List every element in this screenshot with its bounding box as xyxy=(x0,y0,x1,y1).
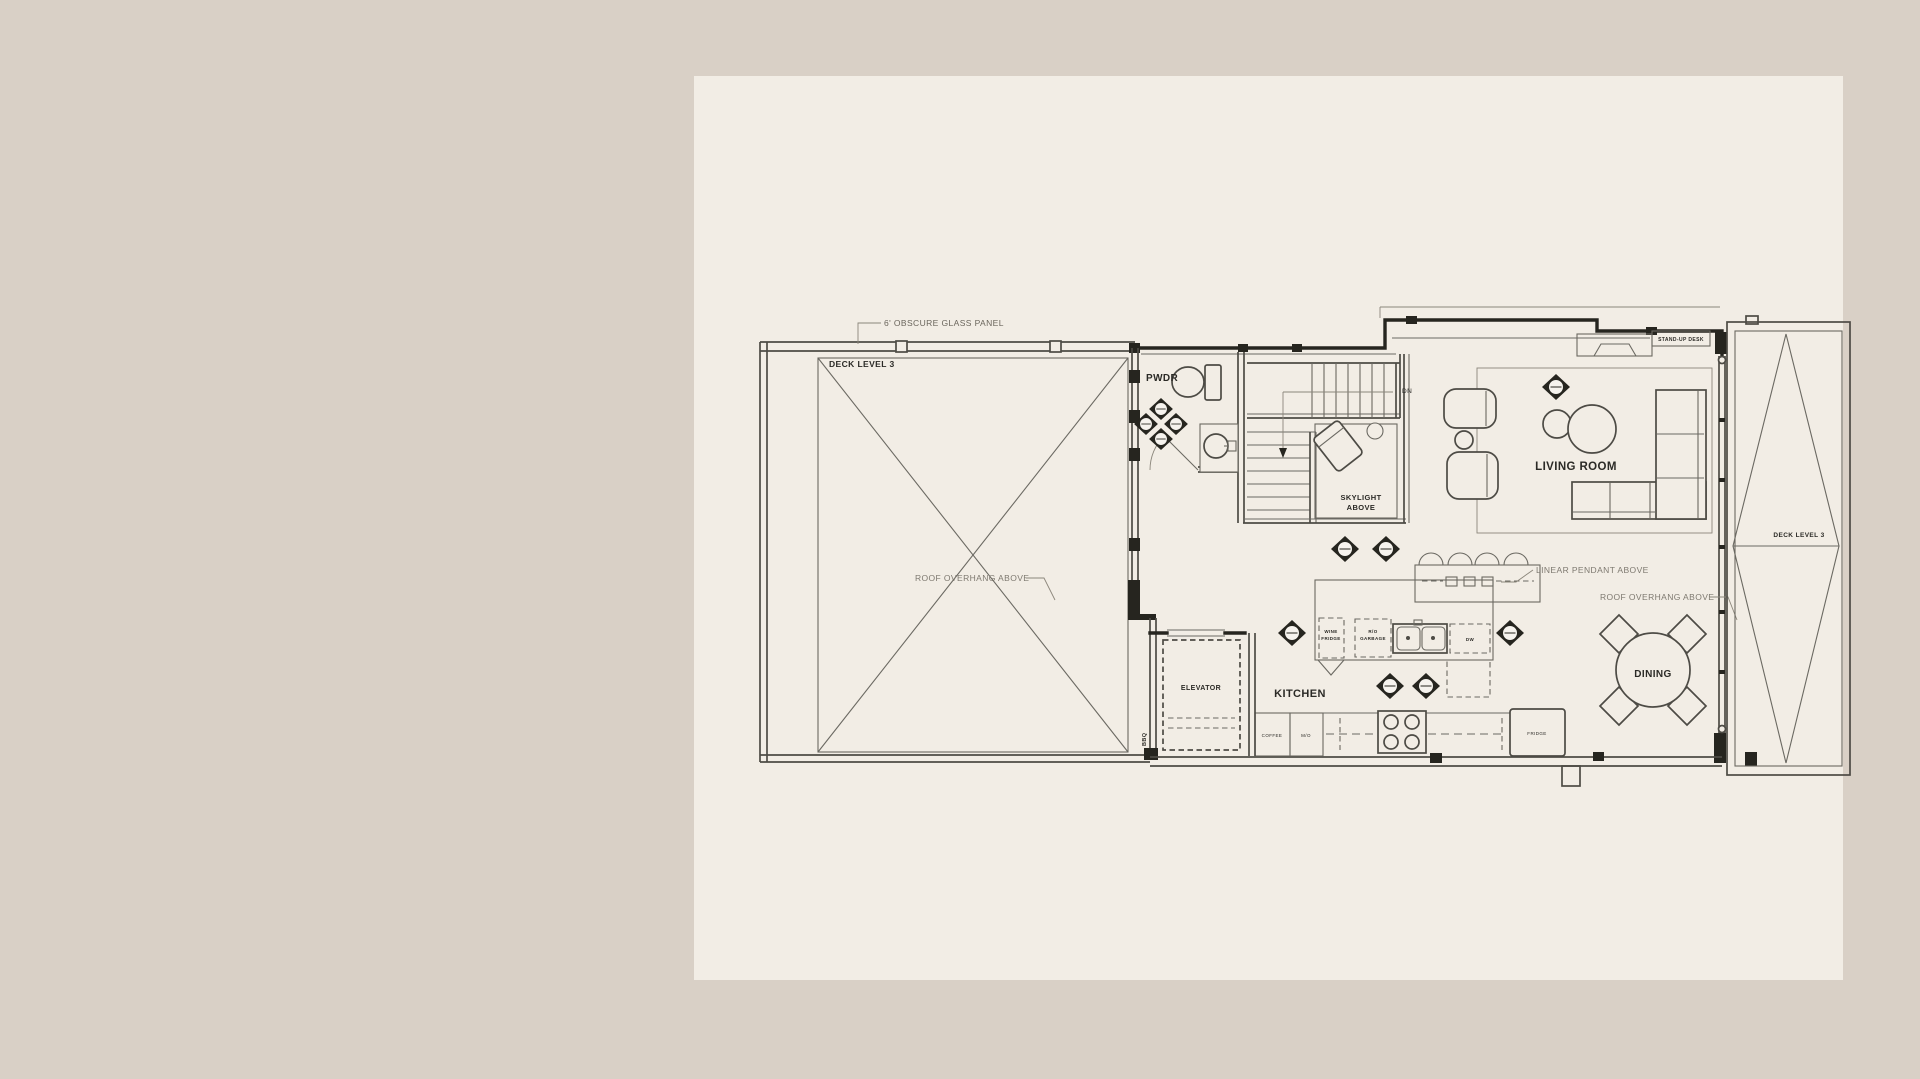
side-table xyxy=(1455,431,1473,449)
glass-panel-tick xyxy=(896,341,907,352)
roof-overhang-left-label: ROOF OVERHANG ABOVE xyxy=(915,573,1029,583)
wine-fridge-label-2: FRIDGE xyxy=(1321,636,1340,641)
glass-panel-tick xyxy=(1050,341,1061,352)
toilet xyxy=(1172,365,1221,400)
glass-panel-label: 6' OBSCURE GLASS PANEL xyxy=(884,318,1004,328)
mo-label: M/O xyxy=(1301,733,1311,738)
coffee-table xyxy=(1568,405,1616,453)
coffee-table xyxy=(1543,410,1571,438)
floor-plan-drawing: DECK LEVEL 3 6' OBSCURE GLASS PANEL ROOF… xyxy=(0,0,1920,1079)
roof-overhang-right-label: ROOF OVERHANG ABOVE xyxy=(1600,592,1714,602)
dining-label: DINING xyxy=(1634,669,1671,680)
ro-garbage-label-1: R/O xyxy=(1368,629,1377,634)
fridge-label: FRIDGE xyxy=(1527,731,1546,736)
deck-left-label: DECK LEVEL 3 xyxy=(829,359,895,369)
door-pull xyxy=(1719,726,1726,733)
armchair xyxy=(1444,389,1496,428)
ro-garbage-label-2: GARBAGE xyxy=(1360,636,1386,641)
pwdr-label: PWDR xyxy=(1146,373,1179,384)
coffee-label: COFFEE xyxy=(1262,733,1283,738)
fridge: FRIDGE xyxy=(1510,709,1565,756)
stove xyxy=(1378,711,1426,753)
door-pull xyxy=(1719,357,1726,364)
linear-pendant-label: LINEAR PENDANT ABOVE xyxy=(1536,565,1649,575)
skylight-label-2: ABOVE xyxy=(1347,503,1376,512)
elevator-label: ELEVATOR xyxy=(1181,685,1221,692)
side-table xyxy=(1367,423,1383,439)
stair-dn-label: DN xyxy=(1402,388,1412,395)
dishwasher-label: DW xyxy=(1466,637,1475,642)
island-sink xyxy=(1393,620,1447,653)
living-room-label: LIVING ROOM xyxy=(1535,461,1617,473)
kitchen-label: KITCHEN xyxy=(1274,688,1326,700)
skylight-label-1: SKYLIGHT xyxy=(1340,493,1381,502)
sink xyxy=(1200,424,1238,472)
wine-fridge-label-1: WINE xyxy=(1324,629,1337,634)
armchair xyxy=(1447,452,1498,499)
floor-plan-photo: DECK LEVEL 3 6' OBSCURE GLASS PANEL ROOF… xyxy=(0,0,1920,1079)
paper-sheet xyxy=(694,76,1843,980)
bbq-label: BBQ xyxy=(1142,732,1148,746)
deck-right-label: DECK LEVEL 3 xyxy=(1773,532,1824,539)
stand-up-desk-label: STAND-UP DESK xyxy=(1658,337,1704,343)
